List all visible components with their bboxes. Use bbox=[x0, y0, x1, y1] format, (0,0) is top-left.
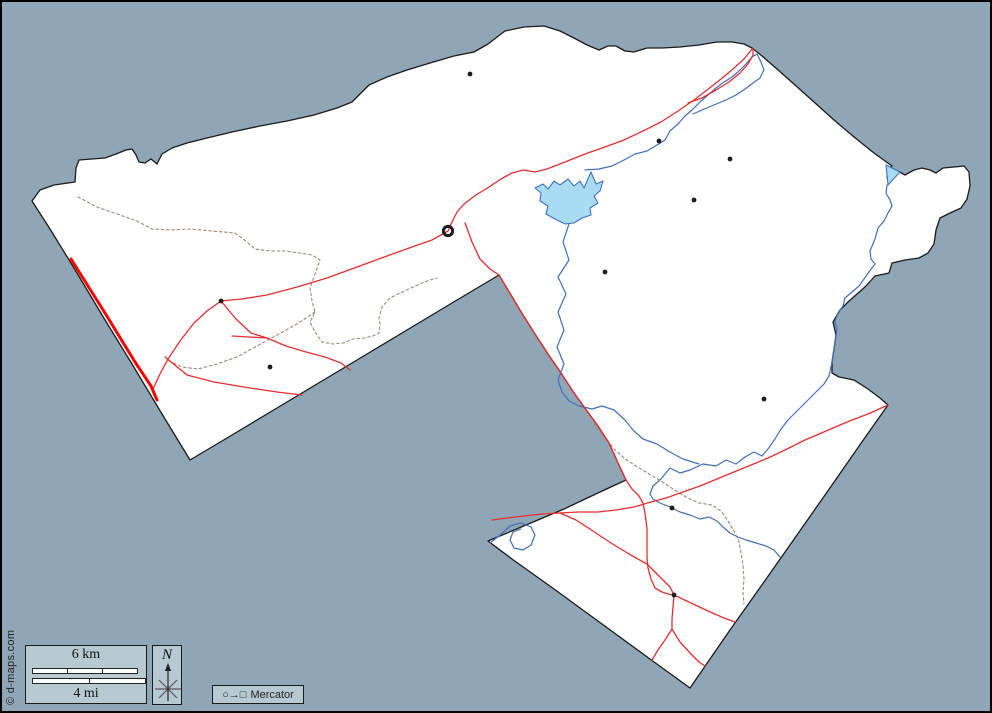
town-marker bbox=[762, 397, 767, 402]
town-marker bbox=[219, 299, 224, 304]
scale-bar-box: 6 km 4 mi bbox=[25, 645, 147, 704]
copyright-watermark: © d-maps.com bbox=[5, 630, 17, 705]
north-arrow-box: N bbox=[152, 645, 182, 705]
map-canvas: 6 km 4 mi N ○→□ Mercator © d-maps.com bbox=[0, 0, 992, 713]
town-marker bbox=[268, 365, 273, 370]
town-marker bbox=[468, 72, 473, 77]
town-marker bbox=[692, 198, 697, 203]
scale-mi-label: 4 mi bbox=[26, 686, 146, 702]
town-marker bbox=[672, 593, 677, 598]
town-marker bbox=[603, 270, 608, 275]
scale-bar-divider bbox=[89, 679, 90, 683]
projection-symbols-icon: ○→□ bbox=[222, 689, 246, 701]
town-marker bbox=[657, 139, 662, 144]
scale-bar-divider bbox=[67, 669, 68, 673]
scale-km-label: 6 km bbox=[26, 647, 146, 663]
scale-bar-km bbox=[32, 668, 138, 674]
town-marker bbox=[728, 157, 733, 162]
projection-box: ○→□ Mercator bbox=[212, 685, 304, 704]
town-marker bbox=[670, 506, 675, 511]
scale-bar-divider bbox=[102, 669, 103, 673]
projection-label: Mercator bbox=[250, 689, 293, 701]
county-map bbox=[2, 2, 992, 713]
scale-bar-mi bbox=[32, 678, 146, 684]
county-outline bbox=[32, 26, 970, 688]
compass-star-icon bbox=[153, 661, 183, 703]
